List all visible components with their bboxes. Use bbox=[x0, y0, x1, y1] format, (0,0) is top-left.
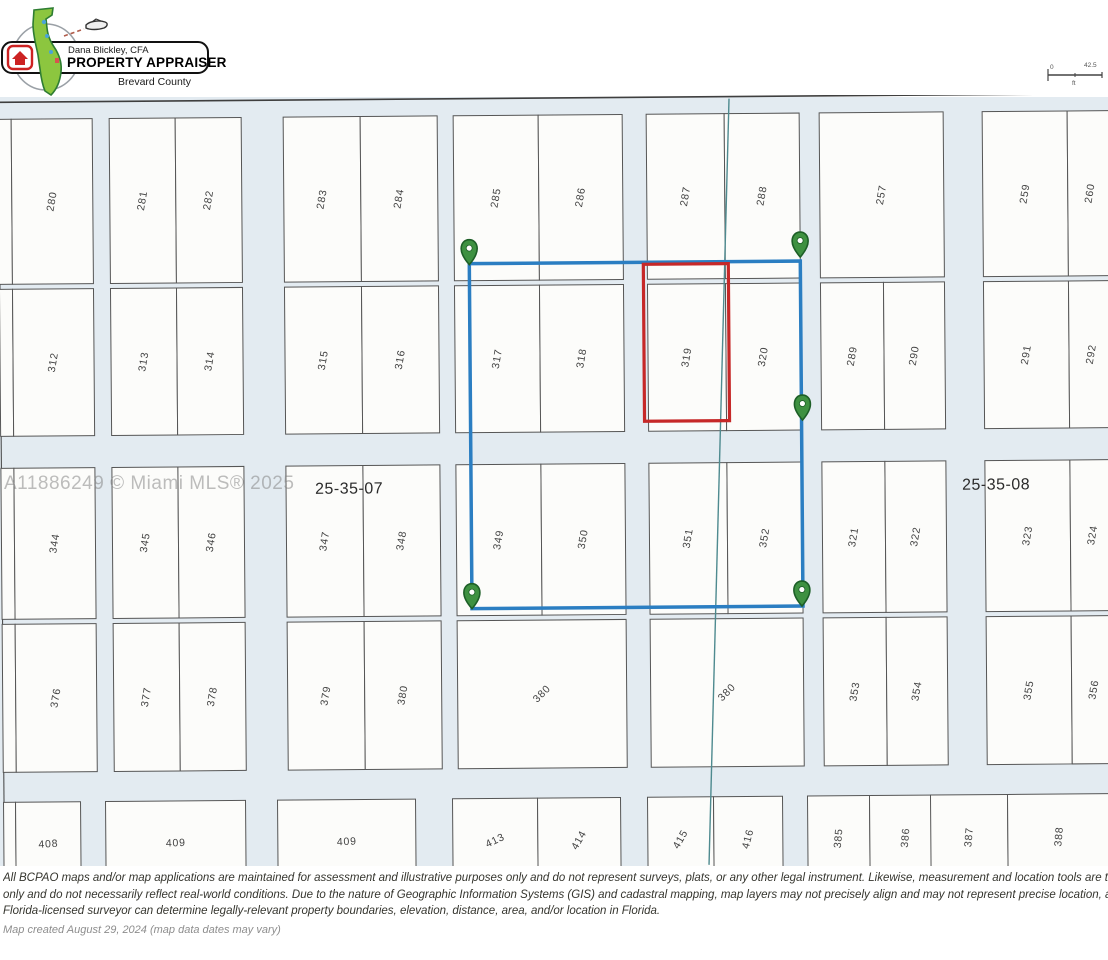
parcel-label: 387 bbox=[962, 827, 976, 848]
disclaimer: All BCPAO maps and/or map applications a… bbox=[0, 866, 1108, 960]
header: Dana Blickley, CFA PROPERTY APPRAISER Br… bbox=[0, 0, 1108, 95]
scale-bar-ruler bbox=[1040, 56, 1108, 94]
parcel-label: 386 bbox=[899, 827, 913, 848]
scale-unit-label: ft bbox=[1072, 80, 1076, 87]
scale-distance-label: 42.5 bbox=[1084, 62, 1097, 69]
disclaimer-line-3: Florida-licensed surveyor can determine … bbox=[3, 903, 1108, 920]
parcel-label: 409 bbox=[337, 835, 357, 848]
florida-shape-icon bbox=[33, 8, 61, 95]
section-label: 25-35-08 bbox=[962, 476, 1030, 494]
scale-bar: 0 42.5 ft bbox=[1040, 56, 1108, 94]
parcel-label: 388 bbox=[1052, 826, 1066, 847]
appraiser-title: PROPERTY APPRAISER bbox=[67, 55, 227, 70]
parcel-label: 409 bbox=[166, 837, 186, 850]
house-icon bbox=[8, 46, 32, 69]
parcel-label: 408 bbox=[38, 838, 59, 851]
mls-watermark: A11886249 © Miami MLS® 2025 bbox=[4, 473, 294, 495]
map-created-note: Map created August 29, 2024 (map data da… bbox=[3, 924, 281, 936]
disclaimer-line-2: only and do not necessarily reflect real… bbox=[3, 887, 1108, 904]
parcel-label: 385 bbox=[832, 828, 846, 849]
section-label: 25-35-07 bbox=[315, 480, 383, 498]
parcel bbox=[0, 119, 12, 284]
scale-zero-label: 0 bbox=[1050, 64, 1054, 71]
disclaimer-line-1: All BCPAO maps and/or map applications a… bbox=[3, 870, 1108, 887]
parcel bbox=[2, 624, 16, 772]
parcel bbox=[0, 289, 14, 436]
rocket-icon bbox=[64, 19, 107, 36]
appraiser-county: Brevard County bbox=[118, 76, 191, 88]
